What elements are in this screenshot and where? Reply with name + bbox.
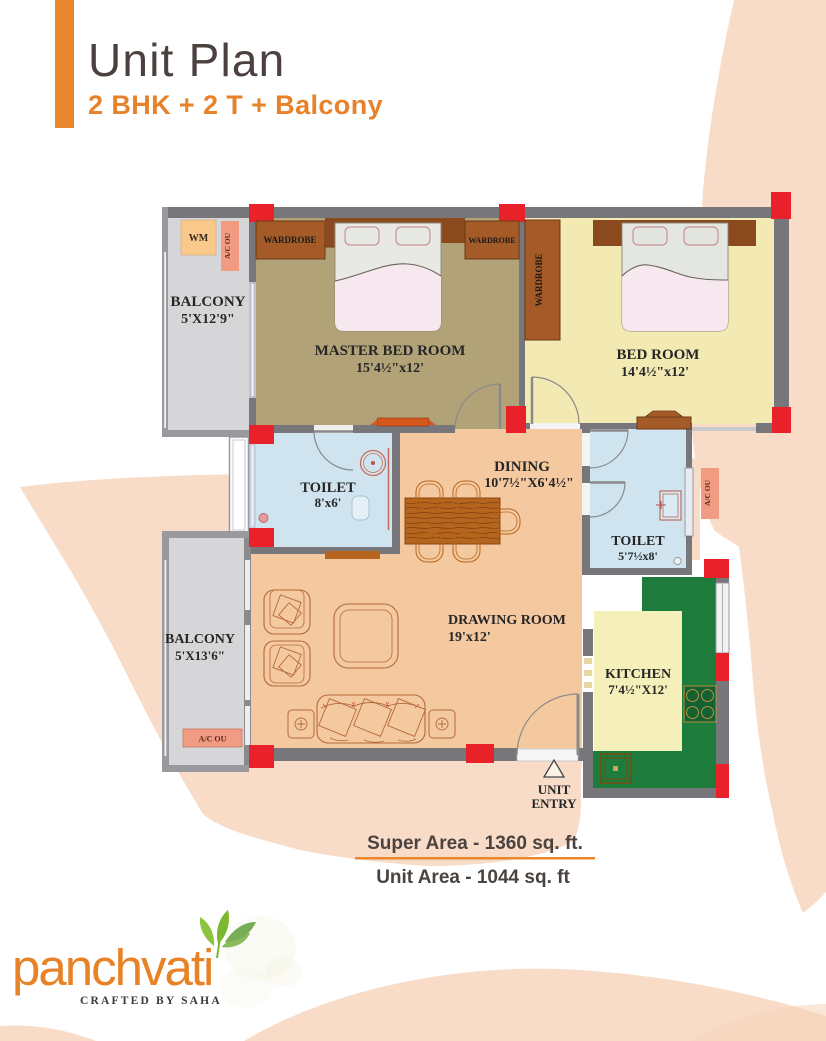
svg-text:Unit Plan: Unit Plan bbox=[88, 34, 285, 86]
svg-text:TOILET: TOILET bbox=[611, 534, 665, 549]
svg-text:BALCONY: BALCONY bbox=[170, 294, 245, 310]
svg-text:Super Area - 1360 sq. ft.: Super Area - 1360 sq. ft. bbox=[367, 833, 583, 854]
svg-text:TOILET: TOILET bbox=[300, 480, 356, 496]
svg-text:MASTER BED ROOM: MASTER BED ROOM bbox=[315, 343, 466, 359]
svg-text:5'X13'6": 5'X13'6" bbox=[175, 648, 225, 663]
svg-text:BALCONY: BALCONY bbox=[165, 632, 235, 647]
svg-text:DRAWING ROOM: DRAWING ROOM bbox=[448, 613, 566, 628]
svg-text:BED ROOM: BED ROOM bbox=[617, 347, 700, 363]
svg-text:KITCHEN: KITCHEN bbox=[605, 667, 671, 682]
svg-text:CRAFTED BY SAHA: CRAFTED BY SAHA bbox=[80, 995, 222, 1007]
svg-text:2 BHK + 2 T + Balcony: 2 BHK + 2 T + Balcony bbox=[88, 90, 383, 120]
svg-text:UNIT: UNIT bbox=[538, 782, 571, 797]
svg-text:5'X12'9": 5'X12'9" bbox=[181, 312, 235, 327]
svg-text:ENTRY: ENTRY bbox=[531, 796, 577, 811]
svg-text:15'4½"x12': 15'4½"x12' bbox=[356, 361, 424, 376]
svg-text:A/C OU: A/C OU bbox=[223, 232, 232, 259]
svg-text:8'x6': 8'x6' bbox=[315, 495, 342, 510]
svg-text:7'4½"X12': 7'4½"X12' bbox=[608, 682, 668, 697]
svg-text:19'x12': 19'x12' bbox=[448, 630, 491, 645]
svg-text:panchvati: panchvati bbox=[12, 939, 212, 996]
svg-text:WARDROBE: WARDROBE bbox=[468, 236, 515, 245]
svg-text:WARDROBE: WARDROBE bbox=[263, 235, 316, 245]
svg-text:10'7½"X6'4½": 10'7½"X6'4½" bbox=[484, 476, 573, 491]
svg-text:5'7½x8': 5'7½x8' bbox=[618, 549, 658, 563]
svg-text:A/C OU: A/C OU bbox=[199, 735, 227, 744]
svg-text:DINING: DINING bbox=[494, 459, 550, 475]
svg-text:Unit Area - 1044 sq. ft: Unit Area - 1044 sq. ft bbox=[376, 867, 570, 888]
svg-text:14'4½"x12': 14'4½"x12' bbox=[621, 365, 689, 380]
svg-text:A/C OU: A/C OU bbox=[703, 479, 712, 506]
svg-text:WARDROBE: WARDROBE bbox=[534, 253, 544, 306]
svg-text:WM: WM bbox=[189, 233, 209, 244]
